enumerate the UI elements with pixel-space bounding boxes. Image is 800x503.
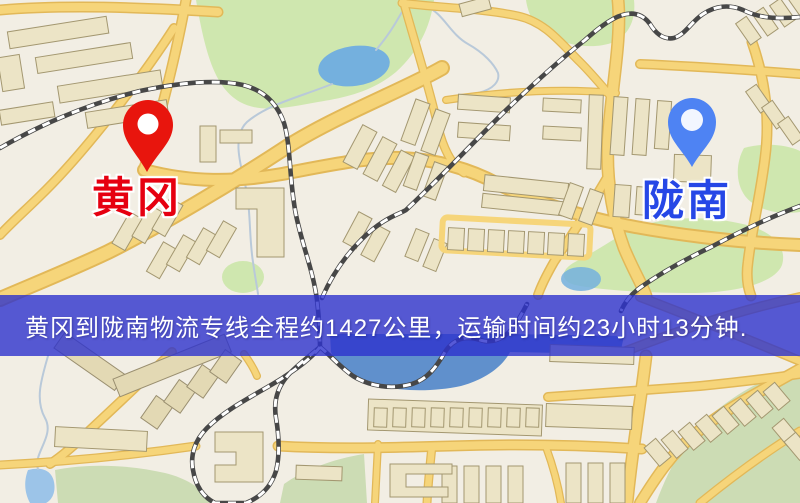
map-screenshot: 黄冈 陇南 黄冈到陇南物流专线全程约1427公里，运输时间约23小时13分钟. — [0, 0, 800, 503]
route-info-text: 黄冈到陇南物流专线全程约1427公里，运输时间约23小时13分钟. — [25, 308, 747, 343]
destination-city-label: 陇南 — [642, 180, 732, 222]
origin-city-label: 黄冈 — [92, 177, 182, 219]
route-info-banner: 黄冈到陇南物流专线全程约1427公里，运输时间约23小时13分钟. — [0, 295, 800, 356]
map-canvas[interactable] — [0, 0, 800, 503]
